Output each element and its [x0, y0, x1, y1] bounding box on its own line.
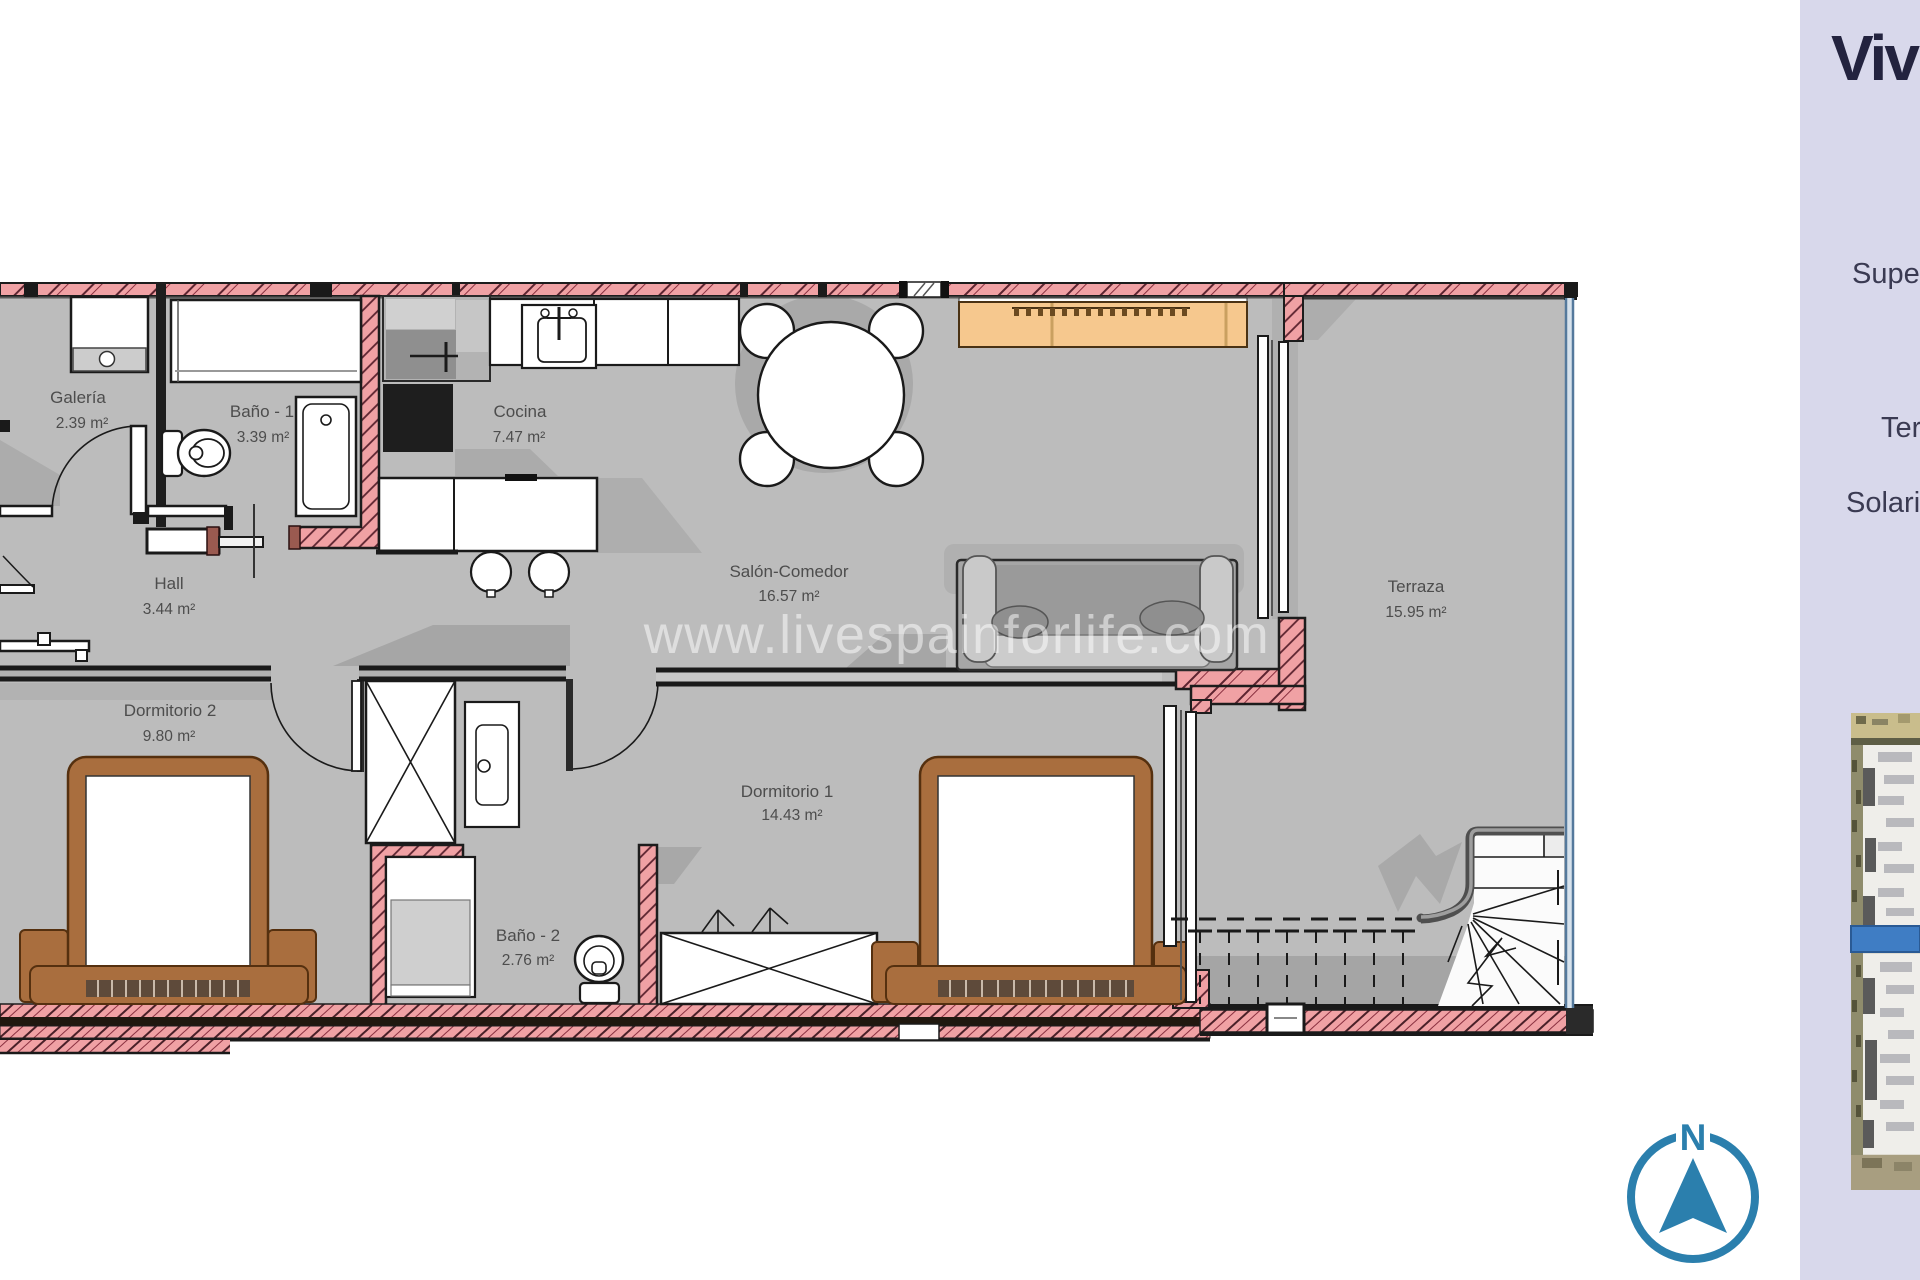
svg-text:www.livespainforlife.com: www.livespainforlife.com [643, 605, 1271, 665]
svg-text:2.76 m²: 2.76 m² [502, 952, 555, 969]
svg-text:16.57 m²: 16.57 m² [758, 588, 819, 605]
svg-text:2.39 m²: 2.39 m² [56, 415, 109, 432]
svg-text:Vivie: Vivie [1831, 22, 1920, 94]
svg-text:Baño - 2: Baño - 2 [496, 926, 560, 945]
svg-text:3.44 m²: 3.44 m² [143, 601, 196, 618]
svg-text:Terra: Terra [1881, 412, 1920, 444]
svg-text:Solariu: Solariu [1846, 487, 1920, 519]
svg-text:15.95 m²: 15.95 m² [1385, 604, 1446, 621]
svg-text:Hall: Hall [154, 574, 183, 593]
svg-text:Cocina: Cocina [494, 402, 547, 421]
svg-text:Baño - 1: Baño - 1 [230, 402, 294, 421]
svg-text:Superf: Superf [1852, 258, 1920, 290]
svg-text:3.39 m²: 3.39 m² [237, 429, 290, 446]
svg-text:Galería: Galería [50, 388, 106, 407]
svg-text:9.80 m²: 9.80 m² [143, 728, 196, 745]
svg-text:Dormitorio 1: Dormitorio 1 [741, 782, 834, 801]
svg-text:Salón-Comedor: Salón-Comedor [729, 562, 848, 581]
svg-text:14.43 m²: 14.43 m² [761, 807, 822, 824]
svg-text:N: N [1680, 1117, 1707, 1158]
svg-text:7.47 m²: 7.47 m² [493, 429, 546, 446]
svg-text:Dormitorio 2: Dormitorio 2 [124, 701, 217, 720]
svg-text:Terraza: Terraza [1388, 577, 1445, 596]
